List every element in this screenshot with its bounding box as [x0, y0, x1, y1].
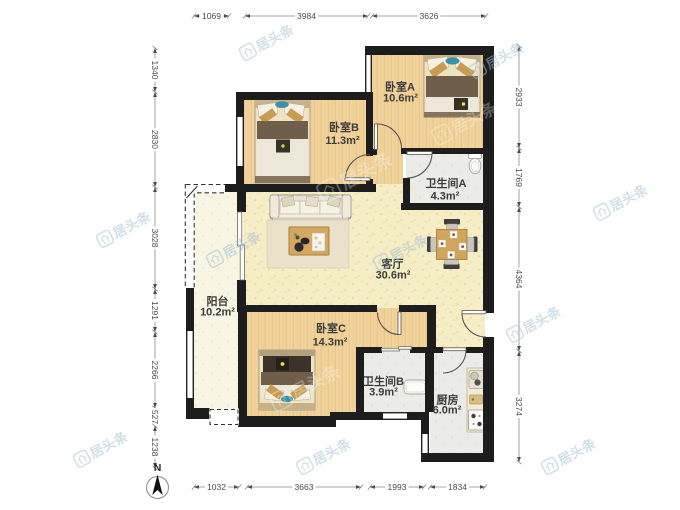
svg-text:14.3m²: 14.3m² [313, 337, 348, 349]
svg-text:3626: 3626 [420, 11, 439, 21]
svg-text:1834: 1834 [448, 482, 467, 492]
svg-text:2933: 2933 [514, 88, 524, 107]
svg-text:3274: 3274 [514, 397, 524, 416]
svg-text:10.2m²: 10.2m² [200, 307, 235, 319]
svg-text:卫生间A: 卫生间A [426, 176, 467, 190]
svg-text:1069: 1069 [202, 11, 221, 21]
svg-text:3028: 3028 [150, 229, 160, 248]
svg-text:1238: 1238 [150, 438, 160, 457]
svg-text:6.0m²: 6.0m² [433, 405, 462, 417]
svg-text:1340: 1340 [150, 61, 160, 80]
svg-text:N: N [154, 462, 162, 474]
svg-text:卧室B: 卧室B [329, 120, 359, 134]
svg-text:1993: 1993 [388, 482, 407, 492]
svg-text:4.3m²: 4.3m² [431, 191, 460, 203]
svg-text:11.3m²: 11.3m² [325, 135, 360, 147]
svg-text:2830: 2830 [150, 130, 160, 149]
svg-text:1769: 1769 [514, 168, 524, 187]
svg-text:2266: 2266 [150, 361, 160, 380]
svg-text:10.6m²: 10.6m² [383, 93, 418, 105]
svg-text:30.6m²: 30.6m² [376, 270, 411, 282]
svg-text:卧室A: 卧室A [385, 80, 415, 94]
svg-text:3.9m²: 3.9m² [369, 387, 398, 399]
svg-text:4364: 4364 [514, 270, 524, 289]
svg-text:3663: 3663 [295, 482, 314, 492]
svg-text:1291: 1291 [150, 301, 160, 320]
svg-text:527: 527 [150, 410, 160, 424]
svg-text:卧室C: 卧室C [316, 321, 346, 335]
svg-text:1032: 1032 [207, 482, 226, 492]
svg-text:3984: 3984 [297, 11, 316, 21]
